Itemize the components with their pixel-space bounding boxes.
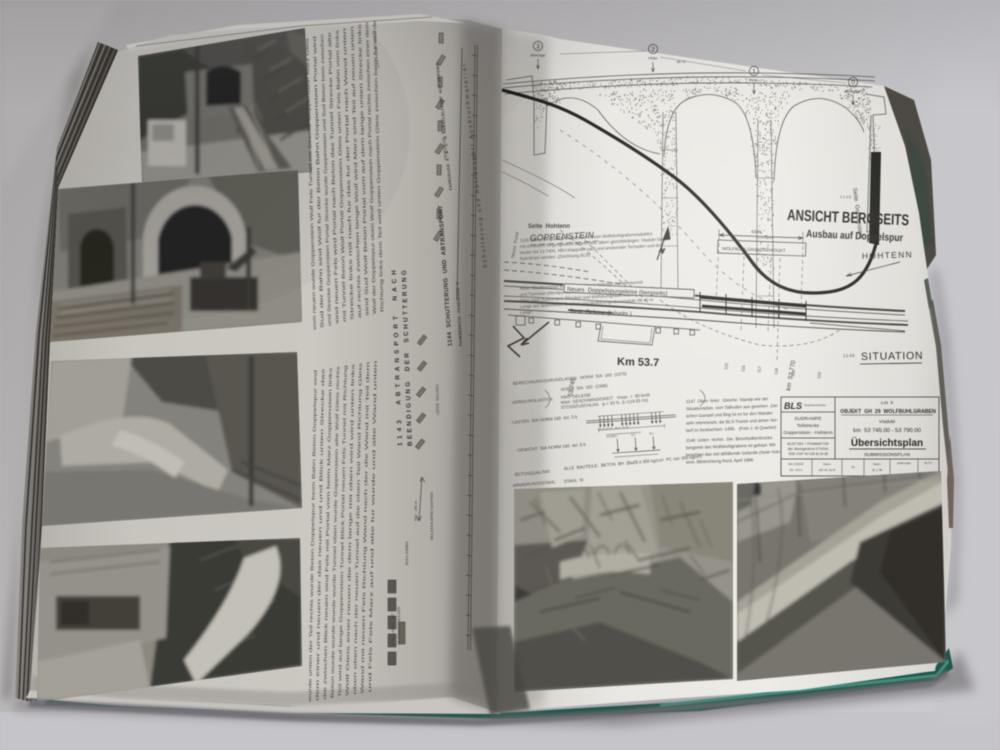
- svg-text:Datum: Datum: [873, 462, 881, 466]
- svg-text:SUBMISSIONSPLAN: SUBMISSIONSPLAN: [864, 452, 910, 458]
- svg-text:BOHLJUMBO: BOHLJUMBO: [405, 541, 409, 565]
- svg-text:Übersichtsplan: Übersichtsplan: [851, 436, 923, 449]
- svg-text:PNEULADER MIT: PNEULADER MIT: [391, 612, 395, 645]
- svg-text:18. 2. 88: 18. 2. 88: [872, 468, 883, 472]
- svg-text:+80 -46 -10.47: +80 -46 -10.47: [819, 468, 837, 472]
- svg-text:LEERE MULDEN: LEERE MULDEN: [435, 384, 440, 415]
- svg-text:Mst 1:50/100: Mst 1:50/100: [789, 462, 805, 466]
- svg-text:40 T 6: 40 T 6: [924, 461, 932, 465]
- svg-text:SEITENKIPPMULDEN: SEITENKIPPMULDEN: [397, 606, 401, 645]
- svg-text:Anderungen: Anderungen: [897, 461, 912, 465]
- svg-text:DS - IS 6.1: DS - IS 6.1: [790, 468, 803, 472]
- svg-text:MULDENKARRETSKIPPER: MULDENKARRETSKIPPER: [430, 492, 434, 540]
- svg-text:Datum: Datum: [823, 462, 831, 466]
- svg-text:500 - 150 m: 500 - 150 m: [414, 501, 418, 521]
